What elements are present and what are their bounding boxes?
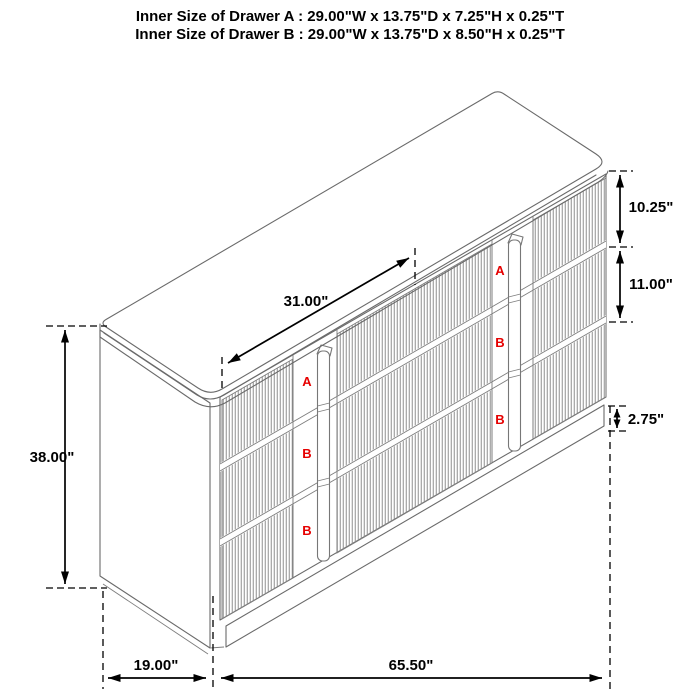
dimension-label-overall-height: 38.00" bbox=[30, 449, 75, 466]
drawer-label-left-a: A bbox=[302, 374, 312, 389]
dimension-label-drawer-b-height: 11.00" bbox=[629, 276, 673, 293]
dimension-label-base-height: 2.75" bbox=[628, 411, 664, 428]
dimension-width: 65.50" bbox=[221, 657, 602, 678]
dimension-overall-height: 38.00" bbox=[30, 326, 107, 588]
handle-left bbox=[317, 345, 332, 561]
dimension-depth: 19.00" bbox=[108, 657, 206, 678]
drawer-label-left-b1: B bbox=[302, 446, 311, 461]
fluted-panel-right bbox=[533, 178, 606, 439]
handle-right bbox=[508, 234, 523, 451]
dimension-label-top-width: 31.00" bbox=[284, 293, 329, 310]
drawer-label-right-a: A bbox=[495, 263, 505, 278]
dresser-cabinet bbox=[100, 92, 608, 654]
drawer-label-right-b1: B bbox=[495, 335, 504, 350]
dimension-label-depth: 19.00" bbox=[134, 657, 179, 674]
dimension-label-drawer-a-height: 10.25" bbox=[629, 199, 674, 216]
dresser-isometric-drawing: A B B A B B 31.00" 38.00" 10.25" bbox=[0, 0, 700, 700]
dimension-label-width: 65.50" bbox=[389, 657, 434, 674]
dimension-base-height: 2.75" bbox=[608, 406, 664, 431]
dimension-diagram-canvas: Inner Size of Drawer A : 29.00"W x 13.75… bbox=[0, 0, 700, 700]
drawer-label-right-b2: B bbox=[495, 412, 504, 427]
dimension-drawer-b-height: 11.00" bbox=[609, 251, 673, 322]
drawer-label-left-b2: B bbox=[302, 523, 311, 538]
dimension-drawer-a-height: 10.25" bbox=[609, 171, 673, 247]
